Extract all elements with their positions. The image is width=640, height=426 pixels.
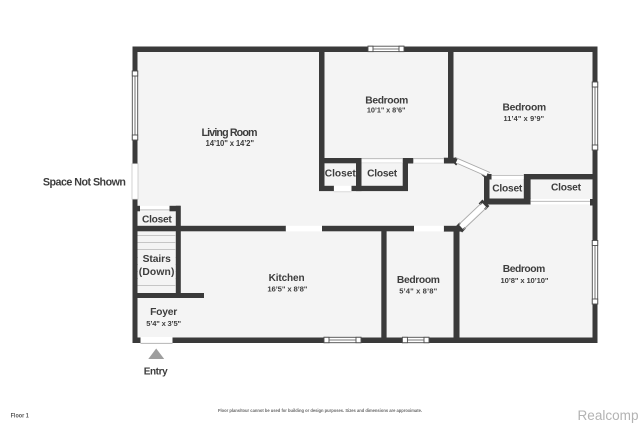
svg-text:Closet: Closet	[367, 168, 398, 179]
svg-text:14’10" x 14’2": 14’10" x 14’2"	[206, 139, 255, 148]
svg-text:Closet: Closet	[492, 184, 523, 195]
svg-text:Entry: Entry	[144, 367, 168, 378]
svg-text:Bedroom: Bedroom	[502, 102, 546, 113]
svg-text:Closet: Closet	[551, 182, 582, 193]
svg-text:Floor plans/tour cannot be use: Floor plans/tour cannot be used for buil…	[218, 408, 422, 413]
svg-text:10’1" x 8’6": 10’1" x 8’6"	[367, 106, 406, 115]
svg-text:Bedroom: Bedroom	[397, 275, 440, 286]
svg-text:Stairs: Stairs	[143, 254, 171, 265]
svg-text:10’8" x 10’10": 10’8" x 10’10"	[501, 276, 549, 285]
svg-text:Realcomp: Realcomp	[578, 408, 639, 423]
svg-text:Closet: Closet	[142, 214, 172, 225]
svg-text:5’4" x 8’8": 5’4" x 8’8"	[399, 286, 437, 295]
svg-text:Space Not Shown: Space Not Shown	[43, 176, 126, 188]
svg-text:Floor 1: Floor 1	[11, 412, 29, 419]
svg-text:Living Room: Living Room	[202, 127, 258, 139]
svg-text:Foyer: Foyer	[150, 307, 177, 318]
svg-text:Kitchen: Kitchen	[269, 273, 305, 284]
svg-text:11’4" x 9’9": 11’4" x 9’9"	[503, 114, 544, 123]
svg-text:Closet: Closet	[325, 168, 357, 179]
svg-text:Bedroom: Bedroom	[503, 264, 546, 275]
svg-text:5’4" x 3’5": 5’4" x 3’5"	[146, 319, 181, 328]
svg-text:16’5" x 8’8": 16’5" x 8’8"	[267, 284, 307, 293]
svg-text:(Down): (Down)	[139, 267, 175, 278]
